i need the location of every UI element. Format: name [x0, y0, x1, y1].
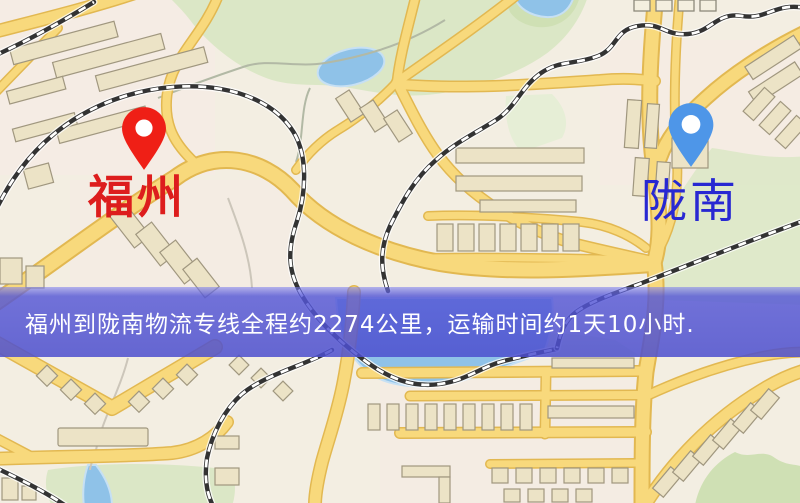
origin-pin-shape	[122, 107, 166, 170]
origin-pin-dot	[135, 119, 152, 136]
destination-pin-dot	[682, 115, 701, 134]
route-info-banner: 福州到陇南物流专线全程约2274公里，运输时间约1天10小时.	[0, 287, 800, 357]
origin-marker-icon	[121, 106, 167, 171]
destination-marker-icon	[667, 102, 715, 168]
origin-city-label: 福州	[88, 174, 186, 220]
destination-city-label: 陇南	[641, 178, 739, 224]
map-canvas	[0, 0, 800, 503]
route-info-text: 福州到陇南物流专线全程约2274公里，运输时间约1天10小时.	[25, 305, 695, 339]
logistics-route-map: 福州到陇南物流专线全程约2274公里，运输时间约1天10小时. 福州 陇南	[0, 0, 800, 503]
destination-pin-shape	[669, 103, 714, 167]
